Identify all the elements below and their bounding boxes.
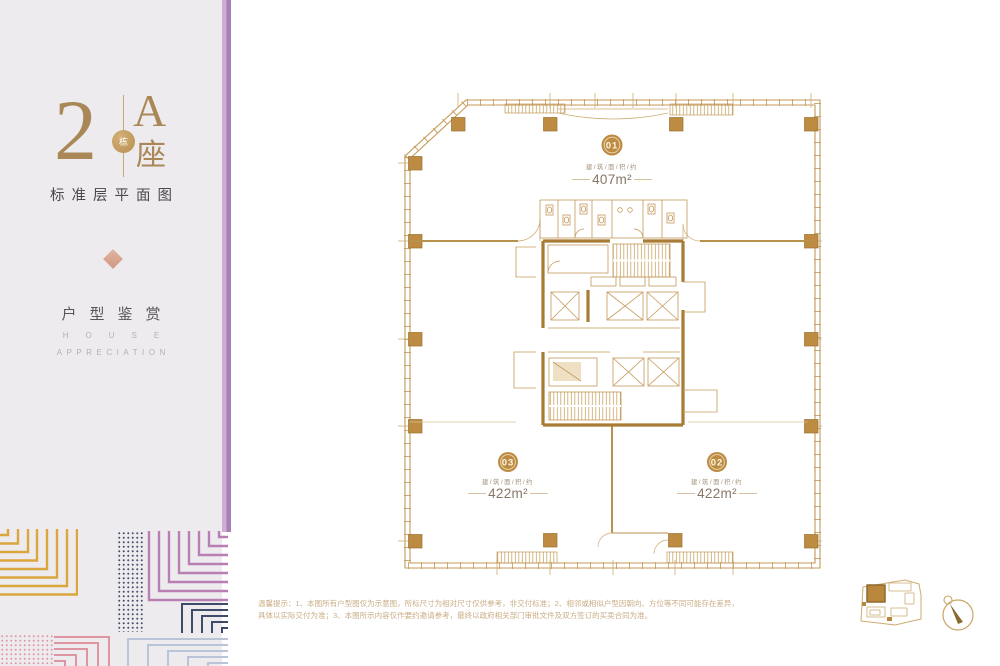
current-building-marker bbox=[867, 585, 885, 602]
tower-letter: A bbox=[133, 86, 166, 136]
pattern-mauve-corners bbox=[142, 531, 228, 603]
sidebar-accent-stripe bbox=[222, 0, 231, 532]
diamond-icon bbox=[103, 249, 123, 269]
pattern-blue-corners bbox=[120, 636, 228, 666]
core bbox=[514, 241, 717, 425]
unit-03-area: 422m² bbox=[488, 486, 528, 501]
entrance-canopy bbox=[558, 109, 668, 119]
unit-01-area-prefix: 建/筑/面/积/约 bbox=[586, 162, 638, 171]
restroom-strip bbox=[540, 200, 687, 238]
section-title-cn: 户型鉴赏 bbox=[0, 303, 222, 324]
site-key-plan bbox=[861, 580, 921, 625]
unit-03-area-prefix: 建/筑/面/积/约 bbox=[482, 477, 534, 486]
unit-02-number: 02 bbox=[711, 457, 724, 468]
unit-01-area: 407m² bbox=[592, 172, 632, 187]
pattern-pink-dots bbox=[0, 634, 55, 666]
building-circle-badge: 栋 bbox=[112, 130, 135, 153]
pattern-navy-corners bbox=[122, 601, 228, 633]
unit-dividers bbox=[410, 241, 810, 533]
unit-01-number: 01 bbox=[606, 140, 619, 151]
core-partitions bbox=[548, 244, 680, 420]
plan-subtitle: 标准层平面图 bbox=[0, 184, 222, 205]
compass-icon bbox=[943, 596, 973, 630]
unit-02-area: 422m² bbox=[697, 486, 737, 501]
unit-label-03: 03 建/筑/面/积/约 422m² bbox=[468, 452, 548, 501]
pattern-gold-corners bbox=[0, 529, 78, 598]
building-number: 2 bbox=[54, 84, 97, 176]
floor-plan: 01 建/筑/面/积/约 407m² 03 建/筑/面/积/约 422m² 02… bbox=[395, 88, 835, 580]
legend bbox=[855, 575, 990, 637]
section-title-en-1: HOUSE bbox=[0, 331, 222, 340]
sidebar: 2 栋 A 座 标准层平面图 户型鉴赏 HOUSE APPRECIATION bbox=[0, 0, 222, 666]
page: 2 栋 A 座 标准层平面图 户型鉴赏 HOUSE APPRECIATION bbox=[0, 0, 1000, 666]
pattern-pink-corners bbox=[54, 634, 114, 666]
section-title-en-2: APPRECIATION bbox=[0, 348, 222, 357]
tower-suffix: 座 bbox=[136, 138, 166, 174]
unit-label-01: 01 建/筑/面/积/约 407m² bbox=[572, 135, 652, 188]
door-swings bbox=[518, 219, 700, 554]
unit-02-area-prefix: 建/筑/面/积/约 bbox=[691, 477, 743, 486]
unit-03-number: 03 bbox=[502, 457, 515, 468]
unit-label-02: 02 建/筑/面/积/约 422m² bbox=[677, 452, 757, 501]
